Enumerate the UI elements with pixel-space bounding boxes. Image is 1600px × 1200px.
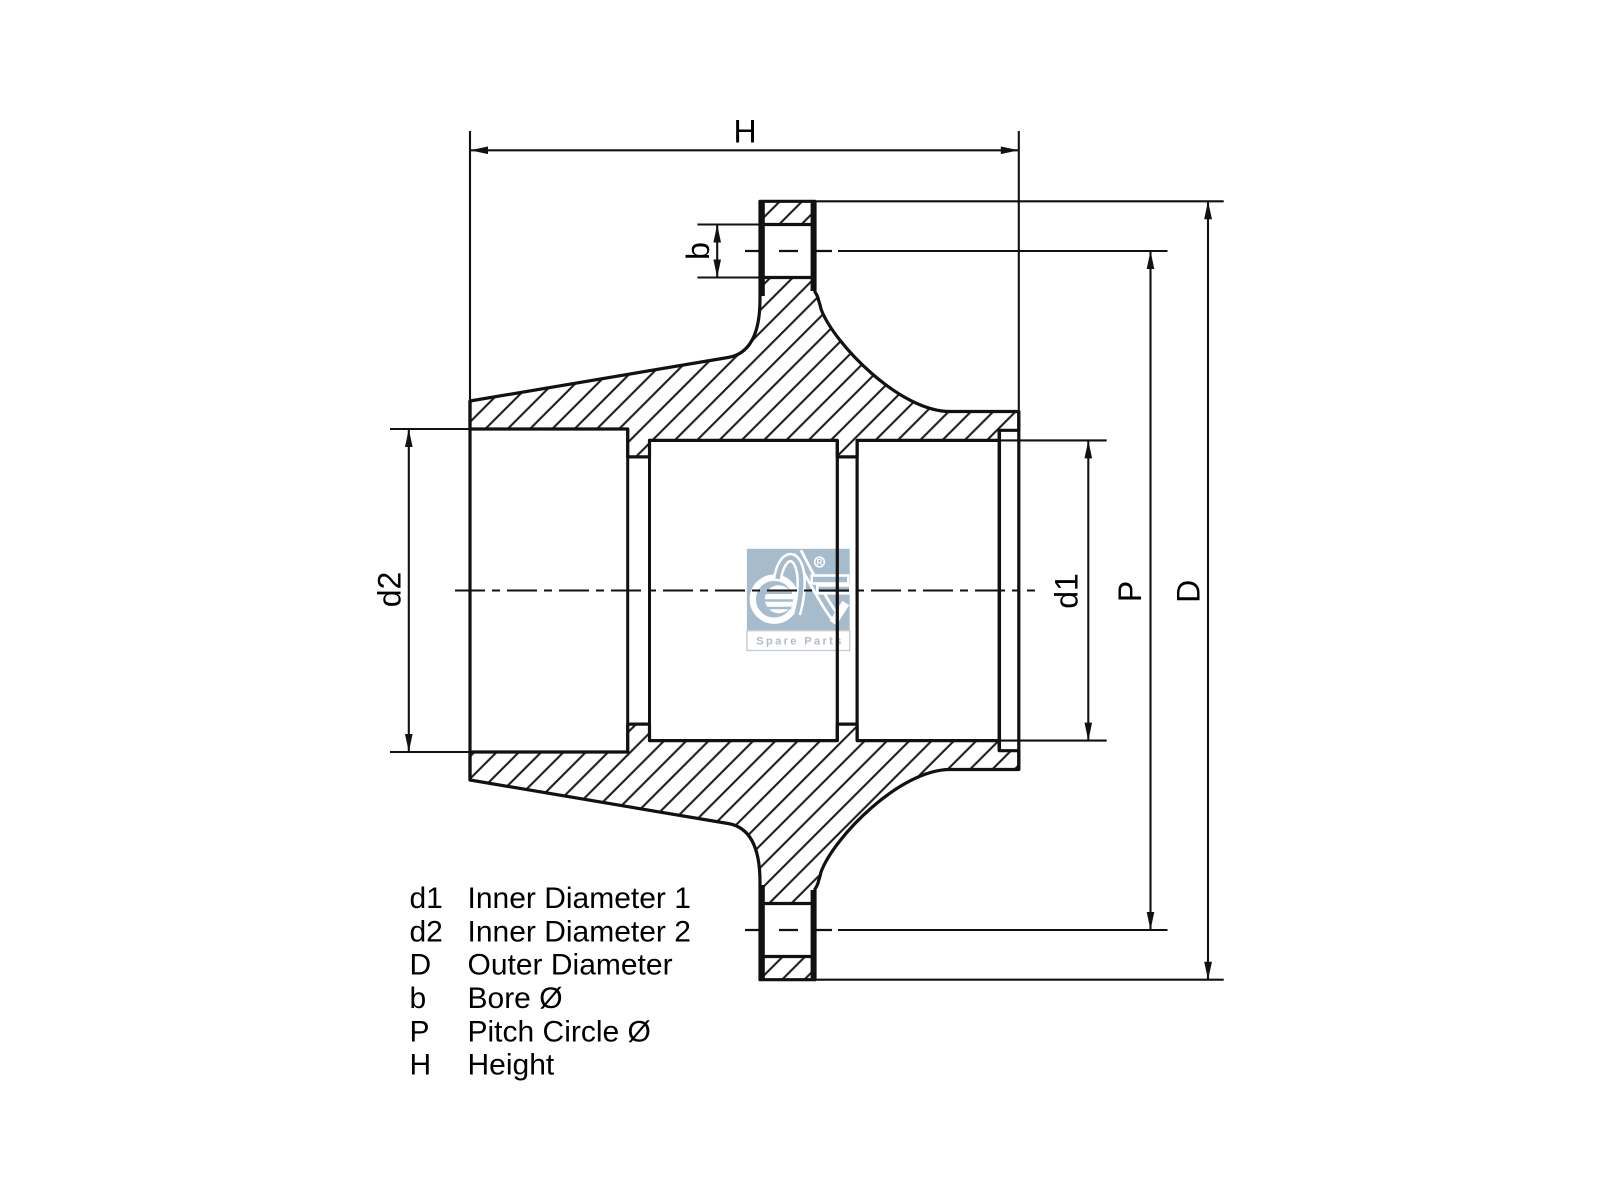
svg-text:d2: d2: [372, 572, 408, 608]
svg-text:Spare Parts: Spare Parts: [756, 636, 844, 648]
svg-text:P: P: [1112, 581, 1148, 602]
svg-text:Bore Ø: Bore Ø: [468, 982, 563, 1015]
svg-text:d1: d1: [1048, 573, 1084, 609]
svg-text:Inner Diameter 2: Inner Diameter 2: [468, 915, 691, 948]
svg-text:P: P: [410, 1015, 430, 1048]
svg-text:H: H: [733, 114, 756, 150]
svg-text:H: H: [410, 1049, 432, 1082]
svg-text:D: D: [1171, 580, 1207, 603]
svg-text:b: b: [680, 242, 716, 260]
svg-text:Inner Diameter 1: Inner Diameter 1: [468, 882, 691, 915]
svg-text:Outer Diameter: Outer Diameter: [468, 949, 673, 982]
svg-text:d2: d2: [410, 915, 443, 948]
svg-text:d1: d1: [410, 882, 443, 915]
svg-text:Height: Height: [468, 1049, 555, 1082]
svg-text:Pitch Circle Ø: Pitch Circle Ø: [468, 1015, 651, 1048]
svg-text:R: R: [817, 558, 823, 567]
svg-text:b: b: [410, 982, 427, 1015]
svg-text:D: D: [410, 949, 432, 982]
